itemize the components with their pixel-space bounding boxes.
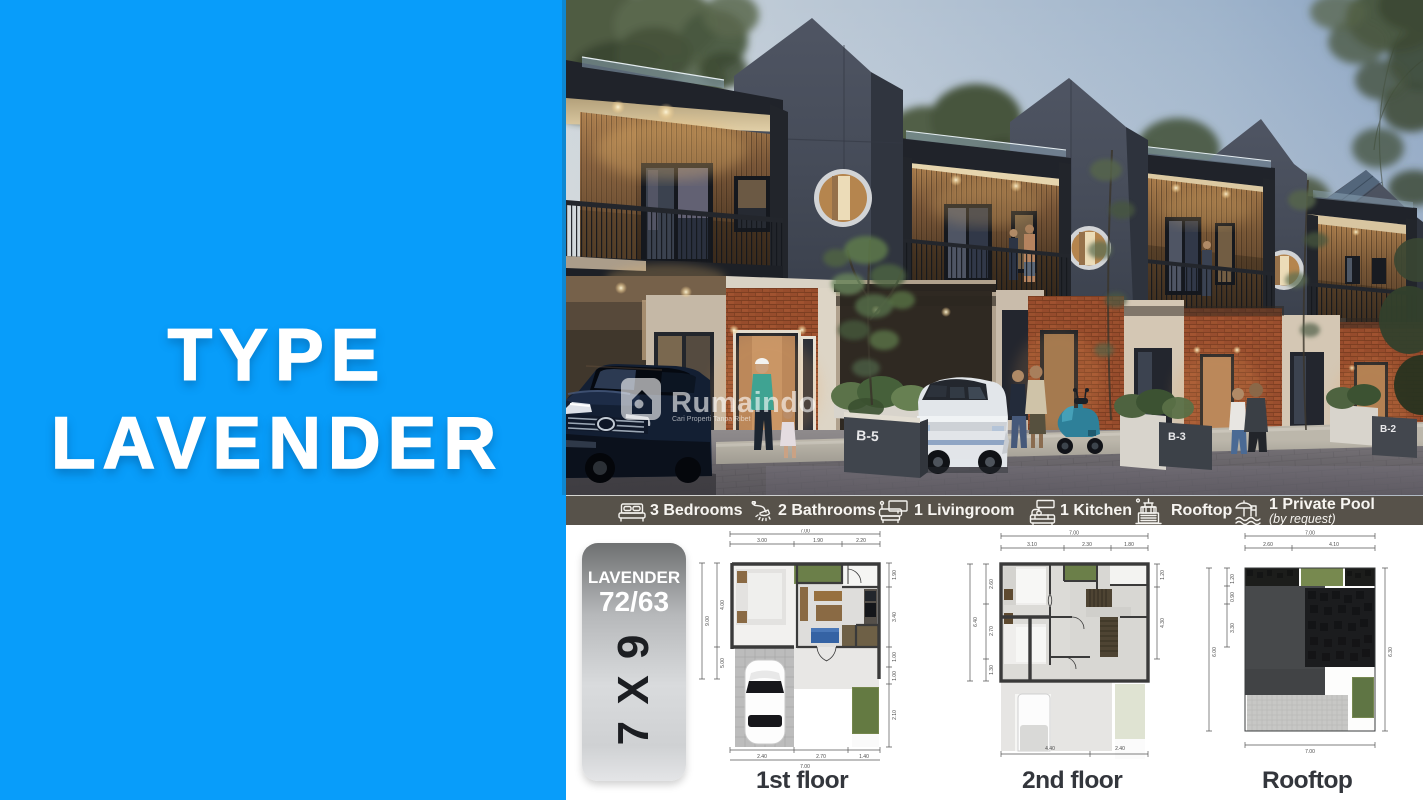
svg-text:3.10: 3.10 <box>1027 542 1037 548</box>
svg-text:3.00: 3.00 <box>757 538 767 544</box>
svg-text:B-2: B-2 <box>1380 424 1397 435</box>
svg-text:2.70: 2.70 <box>816 754 826 760</box>
svg-text:B-5: B-5 <box>856 427 880 444</box>
svg-text:7.00: 7.00 <box>1305 531 1315 537</box>
svg-text:1.00: 1.00 <box>892 652 898 662</box>
svg-text:4.30: 4.30 <box>1160 618 1166 628</box>
svg-text:6.30: 6.30 <box>1388 647 1394 657</box>
svg-text:1.20: 1.20 <box>1230 574 1236 584</box>
svg-text:1.00: 1.00 <box>892 671 898 681</box>
svg-text:2.40: 2.40 <box>1115 746 1125 752</box>
svg-text:3.30: 3.30 <box>1230 623 1236 633</box>
svg-text:2.60: 2.60 <box>1263 542 1273 548</box>
svg-text:1.20: 1.20 <box>1160 570 1166 580</box>
svg-text:7.00: 7.00 <box>1069 531 1079 537</box>
svg-text:7.00: 7.00 <box>1305 749 1315 755</box>
svg-text:3.40: 3.40 <box>892 612 898 622</box>
svg-text:1.90: 1.90 <box>892 570 898 580</box>
svg-text:1.30: 1.30 <box>989 665 995 675</box>
svg-text:0.90: 0.90 <box>1230 592 1236 602</box>
svg-text:4.40: 4.40 <box>1045 746 1055 752</box>
svg-text:4.10: 4.10 <box>1329 542 1339 548</box>
svg-text:2.20: 2.20 <box>856 538 866 544</box>
svg-text:5.00: 5.00 <box>720 658 726 668</box>
svg-text:6.40: 6.40 <box>973 617 979 627</box>
svg-text:1.90: 1.90 <box>813 538 823 544</box>
svg-text:2.70: 2.70 <box>989 626 995 636</box>
svg-text:2.60: 2.60 <box>989 579 995 589</box>
svg-text:7.00: 7.00 <box>800 529 810 535</box>
svg-text:2.40: 2.40 <box>757 754 767 760</box>
svg-text:6.00: 6.00 <box>1212 647 1218 657</box>
svg-text:Cari Properti Tanpa Ribet: Cari Properti Tanpa Ribet <box>672 416 751 423</box>
svg-text:2.10: 2.10 <box>892 710 898 720</box>
svg-text:9.00: 9.00 <box>705 616 711 626</box>
svg-text:Rumaindo: Rumaindo <box>671 387 817 419</box>
svg-text:1.40: 1.40 <box>859 754 869 760</box>
svg-text:4.00: 4.00 <box>720 600 726 610</box>
svg-text:2.30: 2.30 <box>1082 542 1092 548</box>
svg-text:1.80: 1.80 <box>1124 542 1134 548</box>
svg-text:B-3: B-3 <box>1168 431 1186 443</box>
